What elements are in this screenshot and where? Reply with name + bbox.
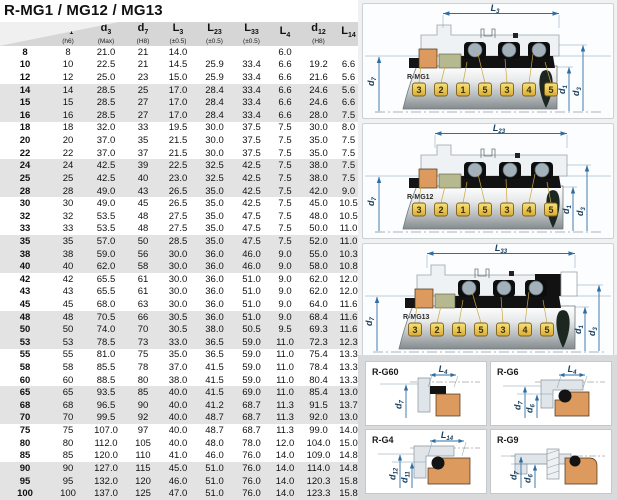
dim-label-d1: d1: [557, 85, 569, 95]
table-cell: 52.0: [300, 235, 337, 248]
arrowhead: [580, 373, 586, 377]
rg6-drawing: R-G6 d7 d6: [491, 362, 609, 423]
seal-face-olive: [439, 54, 461, 68]
table-cell: 9.0: [270, 311, 300, 324]
table-cell: 38.0: [196, 323, 233, 336]
table-cell: 49.0: [86, 185, 126, 198]
table-cell: 30.0: [160, 248, 196, 261]
table-cell: 13.0: [337, 386, 360, 399]
arrowhead: [430, 439, 436, 443]
table-cell: 25: [0, 172, 50, 185]
table-cell: 9.0: [270, 298, 300, 311]
table-cell: 59.0: [233, 349, 270, 362]
table-cell: 28: [50, 185, 86, 198]
table-cell: 14.5: [160, 59, 196, 72]
table-cell: 15: [0, 96, 50, 109]
table-cell: 12.0: [270, 437, 300, 450]
table-cell: 16: [50, 109, 86, 122]
table-cell: 13.3: [337, 374, 360, 387]
table-row: 252542.54023.032.542.57.538.07.5: [0, 172, 360, 185]
table-row: 242442.53922.532.542.57.538.07.5: [0, 159, 360, 172]
table-cell: 6.6: [270, 109, 300, 122]
table-cell: 42.5: [233, 172, 270, 185]
table-cell: 42: [0, 273, 50, 286]
table-cell: 12.0: [337, 273, 360, 286]
table-cell: 7.5: [270, 147, 300, 160]
table-cell: 48: [50, 311, 86, 324]
dim-label-d7: d7: [364, 317, 376, 327]
table-cell: 10.5: [337, 197, 360, 210]
table-cell: 68.0: [86, 298, 126, 311]
table-row: 535378.57333.036.559.011.072.312.3: [0, 336, 360, 349]
seal-name-label: R-MG13: [403, 314, 430, 321]
seat-ring-orange: [419, 49, 437, 68]
table-row: 181832.03319.530.037.57.530.08.0: [0, 122, 360, 135]
table-row: 121225.02315.025.933.46.621.65.6: [0, 71, 360, 84]
table-row: 454568.06330.036.051.09.064.011.6: [0, 298, 360, 311]
table-cell: 57.0: [86, 235, 126, 248]
table-cell: 25.0: [86, 71, 126, 84]
table-cell: 127.0: [86, 462, 126, 475]
set-screw: [509, 271, 514, 276]
table-cell: 53.5: [86, 223, 126, 236]
table-cell: 7.5: [337, 134, 360, 147]
table-cell: 38.0: [160, 374, 196, 387]
column-header: L14: [337, 22, 360, 46]
table-cell: 35.0: [160, 349, 196, 362]
table-cell: 46.0: [233, 248, 270, 261]
table-cell: 6.6: [337, 96, 360, 109]
table-cell: 25: [126, 84, 160, 97]
table-cell: 85: [126, 386, 160, 399]
spring: [468, 43, 482, 57]
table-cell: 13.0: [337, 412, 360, 425]
table-cell: 76.0: [233, 450, 270, 463]
table-cell: 78.5: [86, 336, 126, 349]
table-cell: 68.7: [233, 399, 270, 412]
table-header-row: d1(h6)d3(Max)d7(H8)L3(±0.5)L23(±0.5)L33(…: [0, 22, 360, 46]
svg-text:1: 1: [456, 325, 461, 335]
table-cell: 105: [126, 437, 160, 450]
table-cell: 28.0: [300, 109, 337, 122]
svg-text:4: 4: [522, 325, 527, 335]
table-cell: 7.5: [270, 122, 300, 135]
table-row: 141428.52517.028.433.46.624.65.6: [0, 84, 360, 97]
table-cell: 26.5: [160, 185, 196, 198]
table-cell: 51.0: [196, 475, 233, 488]
table-row: 282849.04326.535.042.57.542.09.0: [0, 185, 360, 198]
table-cell: 9.5: [270, 323, 300, 336]
dim-label-d3: d3: [575, 207, 587, 217]
svg-text:5: 5: [548, 205, 553, 215]
table-row: 585885.57837.041.559.011.078.413.3: [0, 361, 360, 374]
table-cell: 7.5: [270, 210, 300, 223]
table-cell: 115: [126, 462, 160, 475]
table-cell: 7.5: [270, 159, 300, 172]
table-cell: 63: [126, 298, 160, 311]
table-cell: 46.0: [233, 260, 270, 273]
table-cell: 70: [126, 323, 160, 336]
table-cell: 38: [0, 248, 50, 261]
table-row: 101022.52114.525.933.46.619.26.6: [0, 59, 360, 72]
table-cell: 75.4: [300, 349, 337, 362]
table-cell: 37.0: [86, 147, 126, 160]
table-cell: 55: [50, 349, 86, 362]
spring: [468, 163, 482, 177]
table-cell: 15: [50, 96, 86, 109]
dim-label-v2: d6: [523, 474, 535, 484]
elastomer-ring: [409, 58, 419, 68]
arrowhead: [553, 11, 560, 15]
seal-face-olive: [439, 174, 461, 188]
gland-plate: [418, 378, 430, 412]
rmg12-drawing: L23 d7 d1 d3 R-MG12: [363, 124, 613, 238]
table-cell: 7.5: [337, 159, 360, 172]
column-header: d12(H8): [300, 22, 337, 46]
table-cell: 43: [0, 286, 50, 299]
table-cell: 19.5: [160, 122, 196, 135]
spring: [503, 163, 517, 177]
table-cell: 43: [50, 286, 86, 299]
table-cell: 11.6: [337, 311, 360, 324]
table-row: 151528.52717.028.433.46.624.66.6: [0, 96, 360, 109]
table-cell: 20: [50, 134, 86, 147]
table-cell: 99.5: [86, 412, 126, 425]
table-cell: 100: [50, 487, 86, 500]
extension-line: [462, 442, 466, 456]
table-cell: 61: [126, 273, 160, 286]
table-cell: 11.0: [270, 349, 300, 362]
dim-label-d3: d3: [571, 87, 583, 97]
table-cell: 24.6: [300, 84, 337, 97]
table-cell: 78.0: [233, 437, 270, 450]
table-cell: 96.5: [86, 399, 126, 412]
table-cell: 14.0: [270, 450, 300, 463]
table-cell: 97: [126, 424, 160, 437]
arrowhead: [430, 373, 436, 377]
table-cell: 35: [126, 134, 160, 147]
svg-text:5: 5: [482, 205, 487, 215]
table-cell: 48: [126, 223, 160, 236]
table-cell: 36.0: [196, 311, 233, 324]
table-cell: 93.5: [86, 386, 126, 399]
table-cell: 36.0: [196, 298, 233, 311]
seal-name-label: R-MG12: [407, 194, 434, 201]
table-row: 383859.05630.036.046.09.055.010.3: [0, 248, 360, 261]
table-cell: 33: [50, 223, 86, 236]
table-cell: 8.0: [337, 122, 360, 135]
table-cell: 36.5: [196, 349, 233, 362]
dim-label-top: L4: [568, 364, 578, 376]
table-cell: 90: [50, 462, 86, 475]
table-cell: 49.0: [86, 197, 126, 210]
arrowhead: [435, 131, 442, 135]
dim-label-v1: d7: [509, 471, 521, 481]
table-cell: 18: [0, 122, 50, 135]
table-cell: 68.4: [300, 311, 337, 324]
table-cell: 68.7: [233, 424, 270, 437]
arrowhead: [523, 387, 527, 393]
table-cell: 14.0: [270, 475, 300, 488]
table-cell: 64.0: [300, 298, 337, 311]
table-cell: 22.5: [160, 159, 196, 172]
table-cell: 53.5: [86, 210, 126, 223]
table-cell: 42.0: [300, 185, 337, 198]
seal-name-label: R-MG1: [407, 74, 430, 81]
table-cell: 75: [126, 349, 160, 362]
rg4-drawing: R-G4 d12 d11: [366, 430, 484, 493]
table-cell: 14.8: [337, 450, 360, 463]
table-cell: 10: [0, 59, 50, 72]
o-ring: [559, 390, 572, 403]
table-cell: 85.5: [86, 361, 126, 374]
table-cell: 37.0: [86, 134, 126, 147]
table-cell: 22: [50, 147, 86, 160]
table-cell: 60: [0, 374, 50, 387]
table-cell: 33.4: [233, 84, 270, 97]
table-cell: 80: [126, 374, 160, 387]
arrowhead: [571, 187, 575, 194]
svg-text:3: 3: [504, 85, 509, 95]
diagram-panel-rmg12: L23 d7 d1 d3 R-MG12: [362, 123, 614, 239]
dim-label-v2: d11: [400, 471, 412, 483]
table-cell: 14: [50, 84, 86, 97]
table-cell: 65: [50, 386, 86, 399]
table-row: 484870.56630.536.051.09.068.411.6: [0, 311, 360, 324]
table-cell: 120.0: [86, 450, 126, 463]
table-cell: 47.5: [233, 235, 270, 248]
table-cell: 32.5: [196, 159, 233, 172]
table-cell: 56: [126, 248, 160, 261]
table-cell: 9.0: [337, 185, 360, 198]
svg-text:4: 4: [526, 85, 531, 95]
table-cell: 9.0: [270, 248, 300, 261]
dim-label-top: L4: [439, 364, 449, 376]
table-cell: 85: [50, 450, 86, 463]
svg-text:2: 2: [438, 205, 443, 215]
table-cell: 75: [50, 424, 86, 437]
table-cell: 8: [0, 46, 50, 59]
table-cell: 59.0: [233, 361, 270, 374]
table-cell: 6.6: [270, 59, 300, 72]
table-cell: 11.0: [270, 361, 300, 374]
table-cell: 110: [126, 450, 160, 463]
table-cell: 15.0: [160, 71, 196, 84]
svg-text:2: 2: [438, 85, 443, 95]
table-cell: 70: [50, 412, 86, 425]
table-cell: 46.0: [160, 475, 196, 488]
table-cell: 30.0: [196, 147, 233, 160]
dim-label-v2: d6: [525, 404, 537, 414]
table-cell: 41.2: [196, 399, 233, 412]
arrowhead: [451, 373, 457, 377]
table-cell: 51.0: [233, 298, 270, 311]
table-cell: 14.0: [270, 462, 300, 475]
table-row: 9090127.011545.051.076.014.0114.014.8: [0, 462, 360, 475]
table-cell: 28: [0, 185, 50, 198]
table-cell: 12.0: [337, 286, 360, 299]
table-cell: 9.0: [270, 273, 300, 286]
table-cell: 45.0: [160, 462, 196, 475]
table-cell: 42.5: [86, 172, 126, 185]
column-header: d7(H8): [126, 22, 160, 46]
table-cell: [300, 46, 337, 59]
table-cell: 41.5: [196, 386, 233, 399]
table-cell: 7.5: [270, 223, 300, 236]
table-cell: 14.0: [337, 424, 360, 437]
table-cell: 48.0: [196, 437, 233, 450]
table-cell: 27: [126, 109, 160, 122]
table-cell: 70.5: [86, 311, 126, 324]
arrowhead: [567, 67, 571, 74]
table-cell: 37.5: [233, 134, 270, 147]
table-cell: 60: [50, 374, 86, 387]
table-cell: 90: [0, 462, 50, 475]
table-cell: 30.0: [160, 286, 196, 299]
table-row: 161628.52717.028.433.46.628.07.5: [0, 109, 360, 122]
table-cell: 39: [126, 159, 160, 172]
table-cell: 21.6: [300, 71, 337, 84]
table-cell: 80.4: [300, 374, 337, 387]
table-cell: 68: [0, 399, 50, 412]
spring: [532, 43, 546, 57]
table-cell: 28.5: [86, 109, 126, 122]
table-cell: 35.0: [196, 185, 233, 198]
arrowhead: [377, 177, 381, 184]
table-cell: 36.0: [196, 273, 233, 286]
table-row: 7575107.09740.048.768.711.399.014.0: [0, 424, 360, 437]
table-cell: 15.8: [337, 475, 360, 488]
svg-text:1: 1: [460, 85, 465, 95]
table-cell: [196, 46, 233, 59]
table-cell: 7.5: [270, 134, 300, 147]
arrowhead: [583, 307, 587, 314]
table-cell: 112.0: [86, 437, 126, 450]
table-cell: 41.0: [160, 450, 196, 463]
table-cell: 40.0: [160, 386, 196, 399]
diagram-panel-rg6: R-G6 d7 d6: [490, 361, 612, 426]
table-cell: 137.0: [86, 487, 126, 500]
table-cell: 21.0: [86, 46, 126, 59]
table-cell: 27.5: [160, 210, 196, 223]
dim-label-v1: d7: [513, 401, 525, 411]
table-cell: 46.0: [196, 450, 233, 463]
table-cell: 41.5: [196, 361, 233, 374]
table-cell: 32: [0, 210, 50, 223]
table-cell: 11.3: [270, 399, 300, 412]
table-cell: 5.6: [337, 71, 360, 84]
table-cell: 11.0: [270, 336, 300, 349]
table-cell: 42.5: [233, 159, 270, 172]
table-cell: 35.0: [196, 197, 233, 210]
table-cell: 120: [126, 475, 160, 488]
table-cell: 33.4: [233, 59, 270, 72]
table-cell: 12.3: [337, 336, 360, 349]
table-cell: 14.0: [270, 487, 300, 500]
table-cell: 25.9: [196, 71, 233, 84]
table-cell: 76.0: [233, 462, 270, 475]
diagram-panel-rg4: R-G4 d12 d11: [365, 429, 487, 494]
table-cell: 6.0: [270, 46, 300, 59]
table-cell: 11.6: [337, 298, 360, 311]
table-cell: 114.0: [300, 462, 337, 475]
table-cell: 78: [126, 361, 160, 374]
table-cell: 50.5: [233, 323, 270, 336]
table-cell: 90: [126, 399, 160, 412]
dim-label-top: L14: [441, 430, 454, 442]
table-cell: 30: [0, 197, 50, 210]
table-row: 202037.03521.530.037.57.535.07.5: [0, 134, 360, 147]
table-cell: 65: [0, 386, 50, 399]
column-header: L33(±0.5): [233, 22, 270, 46]
table-cell: 65.5: [86, 273, 126, 286]
table-cell: 58: [50, 361, 86, 374]
table-cell: 42: [50, 273, 86, 286]
table-cell: 36.5: [196, 336, 233, 349]
rmg1-drawing: L3 d7 d1 d3 R-MG1: [363, 4, 613, 118]
table-cell: 33: [0, 223, 50, 236]
table-cell: 41.5: [196, 374, 233, 387]
table-cell: 36.0: [196, 248, 233, 261]
part-number-tags: 3 2 1 5 3 4 5: [413, 83, 558, 96]
arrowhead: [443, 11, 450, 15]
table-cell: 55.0: [300, 248, 337, 261]
table-cell: 14: [0, 84, 50, 97]
table-cell: 62.0: [300, 286, 337, 299]
table-cell: 80: [0, 437, 50, 450]
svg-text:3: 3: [416, 205, 421, 215]
table-cell: 37: [126, 147, 160, 160]
svg-text:3: 3: [416, 85, 421, 95]
table-cell: 13.7: [337, 399, 360, 412]
arrowhead: [377, 57, 381, 64]
page-title: R-MG1 / MG12 / MG13: [4, 2, 163, 19]
table-cell: 48.7: [196, 412, 233, 425]
table-cell: 10.3: [337, 248, 360, 261]
table-row: 323253.54827.535.047.57.548.010.5: [0, 210, 360, 223]
table-cell: 120.3: [300, 475, 337, 488]
table-cell: 7.5: [337, 172, 360, 185]
table-cell: 5.6: [337, 84, 360, 97]
table-cell: 62.0: [300, 273, 337, 286]
table-row: 707099.59240.048.768.711.392.013.0: [0, 412, 360, 425]
extension-line: [454, 376, 458, 387]
table-cell: 30.0: [160, 260, 196, 273]
table-cell: 17.0: [160, 96, 196, 109]
table-cell: 76.0: [233, 487, 270, 500]
table-row: 8821.02114.06.0: [0, 46, 360, 59]
arrowhead: [561, 131, 568, 135]
arrowhead: [459, 439, 465, 443]
table-cell: 50.0: [300, 223, 337, 236]
table-cell: 92: [126, 412, 160, 425]
table-row: 333353.54827.535.047.57.550.011.0: [0, 223, 360, 236]
table-cell: 37.5: [233, 122, 270, 135]
spring: [497, 281, 511, 295]
gland-plate: [515, 454, 571, 464]
table-cell: 40.0: [160, 424, 196, 437]
table-cell: 50: [126, 235, 160, 248]
table-cell: 17.0: [160, 109, 196, 122]
arrowhead: [427, 251, 434, 255]
table-row: 434365.56130.036.051.09.062.012.0: [0, 286, 360, 299]
rg60-drawing: R-G60 d7 L4: [366, 362, 484, 423]
table-cell: 14.8: [337, 462, 360, 475]
table-cell: 70: [0, 412, 50, 425]
table-cell: 18: [50, 122, 86, 135]
table-cell: 21.5: [160, 134, 196, 147]
table-cell: 91.5: [300, 399, 337, 412]
